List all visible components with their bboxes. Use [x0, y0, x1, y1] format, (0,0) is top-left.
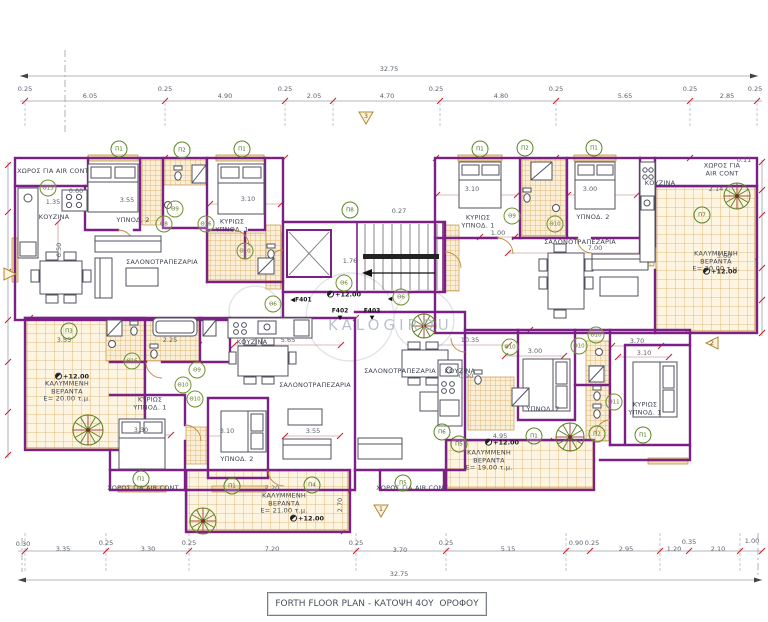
title-block: FORTH FLOOR PLAN - ΚΑΤΟΨΗ 4ΟΥ ΟΡΟΦΟΥ — [267, 592, 487, 616]
floor-plan-canvas: 32.756.054.902.054.704.805.652.850.250.2… — [0, 0, 768, 622]
drawing-title: FORTH FLOOR PLAN - ΚΑΤΟΨΗ 4ΟΥ ΟΡΟΦΟΥ — [275, 599, 478, 609]
plant-symbol — [73, 415, 103, 445]
sofa — [283, 392, 445, 459]
kitchen-counter — [438, 360, 462, 426]
bed — [221, 411, 266, 452]
dining-table — [31, 252, 91, 303]
bed — [88, 164, 138, 212]
dining-table — [539, 244, 593, 318]
watermark: KALOGIROU — [328, 316, 453, 334]
bed — [119, 419, 165, 469]
plant-symbol — [556, 423, 584, 451]
dimension-lines — [8, 50, 762, 580]
kitchen-counter — [18, 188, 87, 258]
elevator — [289, 232, 329, 275]
floor-plan-drawing — [0, 0, 768, 622]
bed — [633, 362, 677, 417]
bed — [523, 359, 570, 411]
plant-symbol — [190, 508, 216, 534]
bed — [575, 162, 615, 209]
kitchen-counter — [228, 318, 312, 338]
kitchen-counter — [640, 162, 655, 262]
bed — [218, 164, 264, 214]
bed — [459, 162, 501, 208]
sofa — [95, 236, 161, 298]
bathtub — [153, 318, 197, 336]
plant-symbol — [724, 183, 750, 209]
